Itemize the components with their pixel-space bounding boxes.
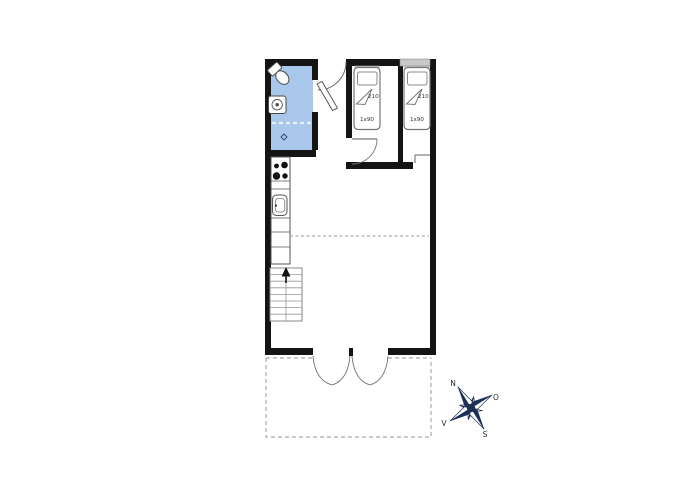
wall-right [430,59,436,355]
bathroom-wall-bottom [265,150,316,157]
washbasin-icon [269,96,287,114]
compass-west-label: V [441,419,447,428]
bed-2-length-label: 210 [418,94,429,100]
compass-east-label: O [493,393,499,402]
bed-1-width-label: 1x90 [360,117,374,123]
bed-2-width-label: 1x90 [410,117,424,123]
bathroom-wall-stub [312,66,318,80]
bed-1: 210 1x90 [354,66,380,130]
compass-north-label: N [450,379,456,388]
bed-1-length-label: 210 [368,94,379,100]
bedroom1-wall-left [346,66,352,138]
bedrooms-divider-wall [398,66,403,162]
compass-south-label: S [483,430,488,439]
bed-2: 210 1x90 [404,66,430,130]
wall-bottom-right [388,348,436,355]
floor-plan-page: 210 1x90 210 1x90 [0,0,700,500]
bed-2-pillow [408,72,428,85]
bathroom-wall-lower [312,112,318,150]
kitchen-sink-icon [273,195,288,216]
staircase [270,267,302,321]
bed-1-pillow [358,72,378,85]
wall-top-mid [346,59,400,66]
wall-bottom-left [265,348,313,355]
french-door-center-post [349,348,353,356]
bedrooms-wall-bottom [346,162,413,169]
floor-plan-drawing: 210 1x90 210 1x90 [0,0,700,500]
window-top-wall [400,59,430,66]
